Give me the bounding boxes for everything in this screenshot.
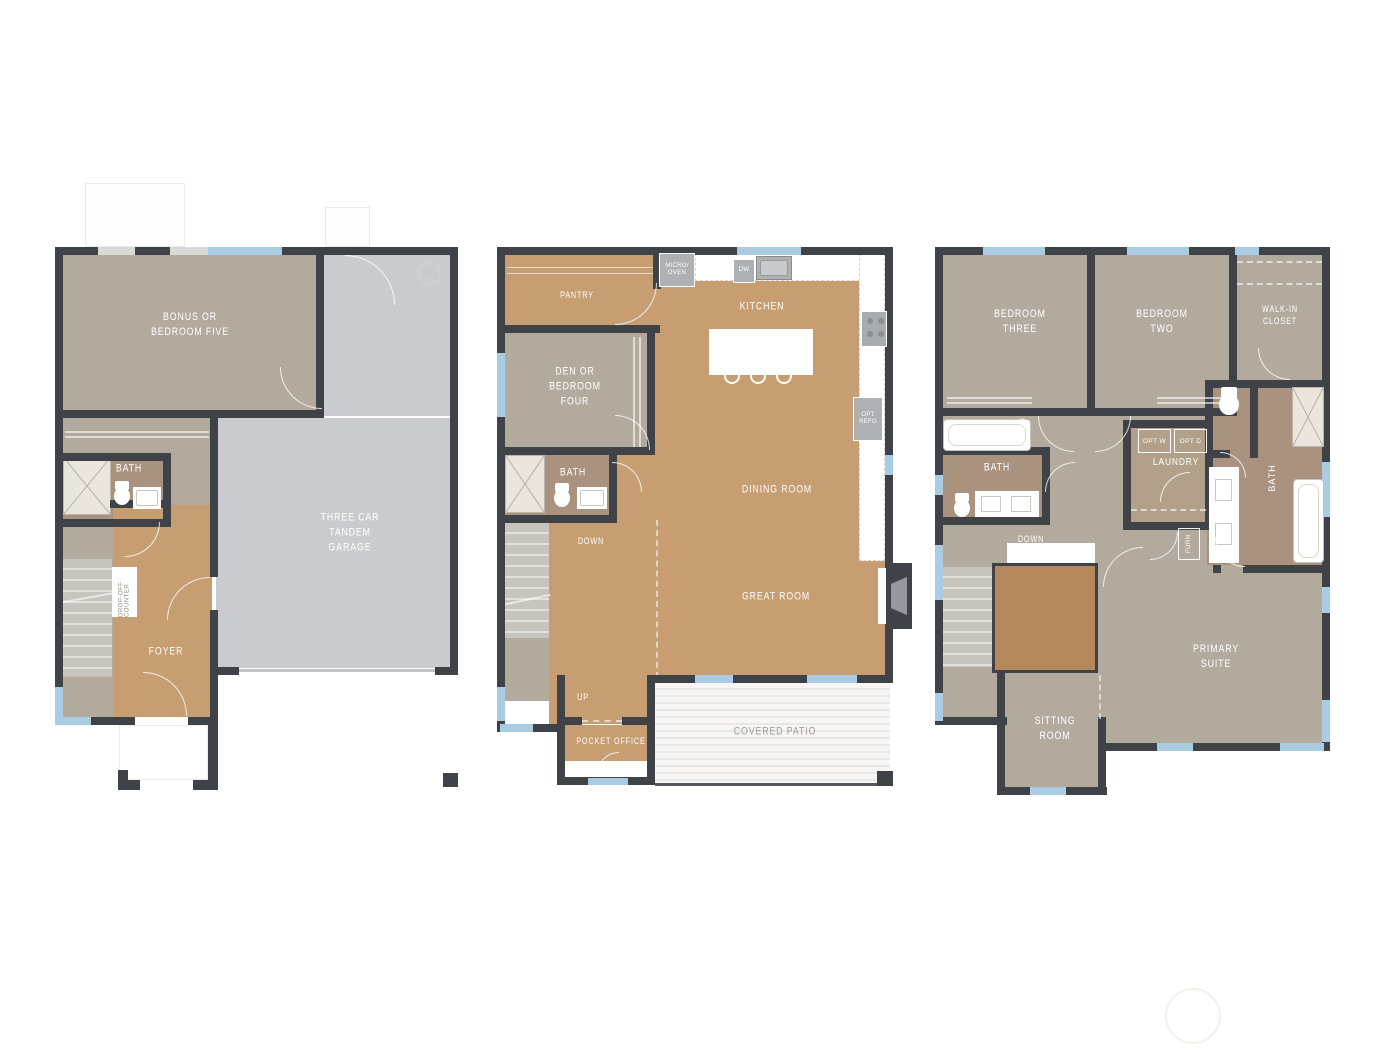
- window: [1322, 700, 1330, 742]
- room-label-den: DEN OR BEDROOM FOUR: [549, 365, 601, 410]
- room-label-primary-suite: PRIMARY SUITE: [1193, 642, 1239, 672]
- room-label-foyer: FOYER: [149, 645, 184, 660]
- room-label-covered-patio: COVERED PATIO: [734, 725, 817, 740]
- wall: [997, 673, 1005, 795]
- wall: [212, 667, 239, 675]
- laundry-dashed-line: [1131, 509, 1206, 511]
- window: [497, 687, 505, 721]
- plan-main-level: MICRO/ OVEN DW OPT REFG PANTRY KITCHEN D…: [497, 247, 915, 792]
- window: [983, 247, 1045, 255]
- wall: [497, 247, 505, 732]
- window: [1127, 247, 1189, 255]
- fireplace-hearth: [878, 568, 886, 624]
- closet-rod-dashed: [1237, 261, 1322, 263]
- freestanding-tub-icon: [1293, 479, 1324, 563]
- watermark-circle: [1165, 988, 1221, 1044]
- room-label-sitting: SITTING ROOM: [1035, 714, 1076, 744]
- room-label-bath-primary: BATH: [1266, 464, 1278, 491]
- room-label-dining: DINING ROOM: [742, 483, 812, 498]
- room-label-bedroom-two: BEDROOM TWO: [1136, 307, 1188, 337]
- porch-corner-tick: [118, 780, 140, 790]
- window: [1235, 247, 1259, 255]
- window: [55, 687, 63, 725]
- window: [935, 475, 943, 495]
- sink-icon: [981, 496, 1001, 512]
- wall: [450, 247, 458, 675]
- sink-icon: [577, 487, 607, 509]
- kitchen-sink-icon: [756, 256, 792, 280]
- window: [695, 675, 733, 683]
- floor-plan-sheet: WH DROP-OFF COUNTER BONUS OR BEDROOM FIV…: [0, 0, 1400, 1050]
- room-label-bath: BATH: [116, 462, 142, 477]
- closet-slider-line: [947, 402, 1032, 404]
- ceiling-break-line: [656, 520, 658, 678]
- window: [63, 717, 91, 725]
- sink-icon: [133, 487, 161, 509]
- kitchen-island: [709, 329, 813, 375]
- toilet-icon: [553, 483, 571, 507]
- plan-lower-level: WH DROP-OFF COUNTER BONUS OR BEDROOM FIV…: [55, 247, 460, 795]
- wall: [655, 675, 893, 683]
- wall: [188, 717, 218, 725]
- window: [807, 675, 857, 683]
- closet-slider-line: [65, 436, 209, 438]
- entry-porch: [119, 725, 208, 780]
- window: [98, 247, 135, 255]
- wall: [55, 453, 171, 461]
- label-linen: LINEN: [1018, 417, 1027, 443]
- sink-icon: [1215, 479, 1232, 501]
- closet-slider-line: [1157, 397, 1227, 399]
- wall: [163, 453, 171, 527]
- opt-refrigerator-appliance: OPT REFG: [853, 397, 883, 441]
- stair-treads-icon: [63, 559, 112, 677]
- wall: [1250, 380, 1258, 458]
- driveway-corner-tick: [443, 773, 458, 787]
- wall: [210, 410, 218, 577]
- window: [935, 545, 943, 600]
- room-label-bonus: BONUS OR BEDROOM FIVE: [151, 310, 229, 340]
- stair-opening: [992, 563, 1098, 673]
- shower-icon: [505, 455, 545, 513]
- cooktop-icon: [861, 311, 887, 347]
- roof-outline: [325, 207, 370, 247]
- wall: [55, 247, 63, 725]
- stair-label-down: DOWN: [1018, 533, 1044, 545]
- wall: [938, 517, 1050, 525]
- drop-off-counter: DROP-OFF COUNTER: [112, 567, 137, 617]
- window: [1157, 743, 1193, 751]
- window: [588, 778, 628, 785]
- wall: [647, 675, 655, 785]
- toilet-icon: [1218, 387, 1240, 415]
- window: [500, 724, 533, 732]
- wall: [1243, 565, 1330, 573]
- window: [935, 693, 943, 721]
- roof-outline: [85, 183, 185, 247]
- furnace-box: FURN: [1178, 528, 1200, 560]
- window: [1280, 743, 1324, 751]
- room-label-great: GREAT ROOM: [742, 590, 810, 605]
- window: [1322, 587, 1330, 613]
- opening-dashed: [1099, 675, 1101, 719]
- closet-slider-line: [65, 431, 209, 433]
- room-label-garage: THREE CAR TANDEM GARAGE: [306, 511, 394, 556]
- room-label-bath: BATH: [560, 466, 586, 481]
- closet-slider-line: [947, 397, 1032, 399]
- wall: [1087, 247, 1095, 416]
- room-label-bedroom-three: BEDROOM THREE: [994, 307, 1046, 337]
- wall: [193, 780, 218, 790]
- window: [1030, 787, 1066, 795]
- stair-label-up: UP: [577, 691, 589, 703]
- sink-icon: [1011, 496, 1031, 512]
- wall: [500, 515, 617, 523]
- opt-dryer-box: OPT D: [1174, 429, 1207, 453]
- window: [208, 247, 282, 255]
- room-label-bath-hall: BATH: [984, 461, 1010, 476]
- wall: [1123, 420, 1213, 428]
- room-label-pantry: PANTRY: [560, 289, 594, 301]
- wall: [208, 725, 218, 782]
- toilet-icon: [113, 481, 131, 505]
- window: [885, 455, 893, 475]
- wall: [1229, 247, 1237, 388]
- plan-upper-level: OPT W OPT D FURN BEDROOM THREE BEDROOM T…: [935, 247, 1335, 799]
- stair-treads-icon: [505, 523, 549, 638]
- toilet-icon: [953, 493, 971, 517]
- window: [497, 353, 505, 417]
- garage-door-line: [239, 669, 435, 672]
- stair-label-down: DOWN: [578, 535, 604, 547]
- opening-dashed: [582, 720, 622, 722]
- wall: [1098, 717, 1106, 795]
- shower-icon: [1292, 387, 1324, 447]
- wall: [497, 247, 893, 255]
- pantry-shelf-line: [507, 267, 653, 268]
- room-label-kitchen: KITCHEN: [740, 300, 785, 315]
- window: [170, 247, 208, 255]
- room-label-laundry: LAUNDRY: [1153, 455, 1199, 469]
- room-label-pocket-office: POCKET OFFICE: [576, 735, 645, 747]
- wall: [647, 333, 655, 455]
- micro-oven-appliance: MICRO/ OVEN: [659, 253, 695, 287]
- window: [737, 247, 801, 255]
- pantry-shelf-line: [507, 273, 653, 274]
- wall: [622, 717, 655, 725]
- wall: [55, 410, 324, 418]
- wall: [1213, 565, 1221, 573]
- water-heater-icon: WH: [417, 261, 441, 285]
- closet-slider-line: [1157, 402, 1227, 404]
- opt-washer-box: OPT W: [1138, 429, 1171, 453]
- patio-edge-line: [655, 783, 893, 786]
- shower-icon: [63, 457, 111, 515]
- closet-rod-dashed: [1237, 283, 1322, 285]
- patio-corner-post: [877, 771, 893, 786]
- wall: [500, 325, 660, 333]
- wall: [938, 408, 1237, 416]
- room-kitchen-dining-great: [655, 253, 885, 675]
- room-label-walk-in-closet: WALK-IN CLOSET: [1262, 303, 1298, 327]
- dishwasher-appliance: DW: [733, 259, 755, 283]
